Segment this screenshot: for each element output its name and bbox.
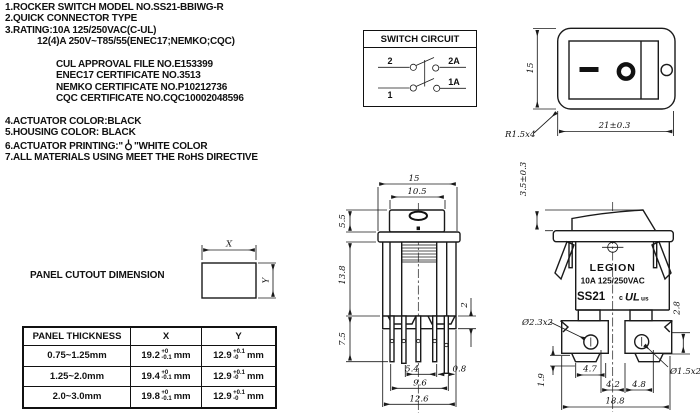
rocker-actuator-side	[572, 210, 656, 231]
spec-notes: 1.ROCKER SWITCH MODEL NO.SS21-BBIWG-R 2.…	[5, 2, 350, 163]
y-unit: mm	[247, 391, 264, 402]
thickness-value: 2.0~3.0mm	[24, 386, 130, 407]
x-tolerance: +0-0.1	[161, 350, 171, 361]
table-header-y: Y	[201, 328, 275, 345]
dim-front-width: 21±0.3	[598, 121, 631, 131]
thickness-value: 0.75~1.25mm	[24, 345, 130, 366]
dim-corner-radius: R1.5x4	[504, 130, 535, 140]
terminal-label-2: 2	[387, 56, 392, 66]
x-unit: mm	[174, 391, 191, 402]
cul-us-logo: c UL us	[619, 292, 649, 304]
dim-rocker-height: 3.5±0.3	[519, 161, 529, 196]
y-value: 12.9+0.1-0mm	[201, 345, 275, 366]
dim-total-width: 18.8	[605, 397, 625, 407]
cutout-dimension-lines	[202, 245, 276, 298]
table-row: 0.75~1.25mm 19.2+0-0.1mm 12.9+0.1-0mm	[24, 345, 275, 366]
dim-span-mid: 9.6	[413, 379, 427, 389]
x-value: 19.8+0-0.1mm	[130, 386, 201, 407]
table-row: 1.25~2.0mm 19.4+0-0.1mm 12.9+0.1-0mm	[24, 366, 275, 387]
thickness-value: 1.25~2.0mm	[24, 366, 130, 387]
ribbed-vent	[402, 245, 437, 262]
y-unit: mm	[247, 350, 264, 361]
x-base: 19.8	[141, 391, 160, 402]
side-view-drawing: LEGION 10A 125/250VAC SS21 c UL us	[520, 160, 700, 419]
terminal-label-2a: 2A	[448, 56, 460, 66]
switch-circuit-title: SWITCH CIRCUIT	[364, 31, 476, 48]
main-view-drawing: 15 10.5 5.5 13.8 7.5 2 5.4 0.8 9.6 12.6	[340, 170, 525, 419]
dim-foot-height: 1.9	[537, 373, 547, 387]
y-base: 12.9	[213, 371, 232, 382]
note-housing-color: 5.HOUSING COLOR: BLACK	[5, 127, 350, 138]
terminal-label-1: 1	[387, 90, 392, 100]
note-cert-cqc: CQC CERTIFICATE NO.CQC10002048596	[5, 93, 350, 104]
cutout-x-label: X	[225, 240, 233, 250]
x-tolerance: +0-0.1	[161, 371, 171, 382]
note-model: 1.ROCKER SWITCH MODEL NO.SS21-BBIWG-R	[5, 2, 350, 13]
table-header-thickness: PANEL THICKNESS	[24, 328, 130, 345]
y-value: 12.9+0.1-0mm	[201, 366, 275, 387]
model-marking: SS21	[577, 291, 606, 303]
x-value: 19.2+0-0.1mm	[130, 345, 201, 366]
switch-circuit-panel: SWITCH CIRCUIT 2 2A 1 1A	[363, 30, 477, 107]
table-row: 2.0~3.0mm 19.8+0-0.1mm 12.9+0.1-0mm	[24, 386, 275, 407]
actuator-center-mark	[417, 227, 420, 231]
panel-thickness-table: PANEL THICKNESS X Y 0.75~1.25mm 19.2+0-0…	[22, 326, 277, 409]
dim-body-height: 13.8	[338, 265, 348, 285]
table-header-row: PANEL THICKNESS X Y	[24, 328, 275, 345]
note-rohs: 7.ALL MATERIALS USING MEET THE RoHS DIRE…	[5, 152, 350, 163]
switch-body-outline	[378, 210, 460, 329]
y-tolerance: +0.1-0	[233, 391, 245, 402]
x-tolerance: +0-0.1	[161, 391, 171, 402]
svg-text:UL: UL	[625, 292, 640, 304]
flange-side	[553, 231, 673, 242]
dim-span-outer: 12.6	[409, 395, 429, 405]
dim-step: 2	[460, 302, 470, 308]
rocker-off-mark: O	[619, 64, 633, 78]
dim-hole-to-center-right: 4.8	[631, 380, 646, 390]
svg-text:us: us	[641, 296, 649, 303]
x-base: 19.4	[141, 371, 160, 382]
note-actuator-color: 4.ACTUATOR COLOR:BLACK	[5, 116, 350, 127]
switch-housing-outline	[558, 28, 675, 109]
dim-span-inner: 5.4	[405, 365, 419, 375]
dim-actuator-width: 10.5	[407, 187, 426, 197]
note-printing-prefix: 6.ACTUATOR PRINTING:"	[5, 141, 123, 152]
y-base: 12.9	[213, 350, 232, 361]
note-cert-enec: ENEC17 CERTIFICATE NO.3513	[5, 70, 350, 81]
y-unit: mm	[247, 371, 264, 382]
y-tolerance: +0.1-0	[233, 350, 245, 361]
front-view-dimension-lines	[533, 29, 674, 137]
note-rating: 3.RATING:10A 125/250VAC(C-UL)	[5, 25, 350, 36]
x-base: 19.2	[141, 350, 160, 361]
brand-marking: LEGION	[590, 262, 636, 274]
dim-front-height: 15	[526, 63, 536, 74]
rating-marking: 10A 125/250VAC	[581, 276, 645, 286]
dim-main-width: 15	[409, 174, 420, 184]
dim-pin-length: 7.5	[338, 332, 348, 346]
table-header-x: X	[130, 328, 201, 345]
mounting-flange	[378, 232, 460, 242]
x-value: 19.4+0-0.1mm	[130, 366, 201, 387]
dim-hole-left: Ø2.3x2	[521, 317, 553, 328]
front-view-drawing: — O 15 21±0.3 R1.5x4	[500, 0, 700, 145]
note-cert-cul: CUL APPROVAL FILE NO.E153399	[5, 59, 350, 70]
y-value: 12.9+0.1-0mm	[201, 386, 275, 407]
rocker-switch-datasheet: 1.ROCKER SWITCH MODEL NO.SS21-BBIWG-R 2.…	[0, 0, 700, 419]
terminal-label-1a: 1A	[448, 77, 460, 87]
power-symbol-icon	[124, 139, 133, 151]
panel-cutout-drawing: X Y	[190, 235, 290, 315]
cutout-y-label: Y	[262, 276, 272, 283]
notes-spacer	[5, 48, 350, 59]
terminal-holes	[584, 335, 649, 349]
housing-side-hole	[661, 64, 672, 75]
note-rating-2: 12(4)A 250V~T85/55(ENEC17;NEMKO;CQC)	[5, 36, 350, 47]
switch-circuit-diagram: 2 2A 1 1A	[364, 48, 476, 105]
y-base: 12.9	[213, 391, 232, 402]
x-unit: mm	[174, 350, 191, 361]
rocker-on-mark: —	[580, 67, 599, 72]
x-unit: mm	[174, 371, 191, 382]
note-connector: 2.QUICK CONNECTOR TYPE	[5, 13, 350, 24]
dim-hole-pos: 2.8	[673, 301, 683, 316]
y-tolerance: +0.1-0	[233, 371, 245, 382]
panel-cutout-title: PANEL CUTOUT DIMENSION	[30, 270, 164, 281]
cutout-rect	[202, 263, 256, 298]
side-body-outline	[553, 210, 673, 310]
svg-text:c: c	[619, 295, 623, 302]
terminal-base	[561, 310, 673, 362]
dim-hole-right: Ø1.5x2	[669, 366, 700, 377]
dim-pin-thickness: 0.8	[453, 365, 467, 375]
note-cert-nemko: NEMKO CERTIFICATE NO.P10212736	[5, 82, 350, 93]
dim-foot-width: 4.7	[582, 365, 597, 375]
dim-actuator-height: 5.5	[338, 214, 348, 228]
note-actuator-printing: 6.ACTUATOR PRINTING:""WHITE COLOR	[5, 139, 350, 152]
dim-hole-to-center-left: 4.2	[605, 380, 620, 390]
note-printing-suffix: "WHITE COLOR	[134, 141, 207, 152]
notes-spacer	[5, 105, 350, 116]
